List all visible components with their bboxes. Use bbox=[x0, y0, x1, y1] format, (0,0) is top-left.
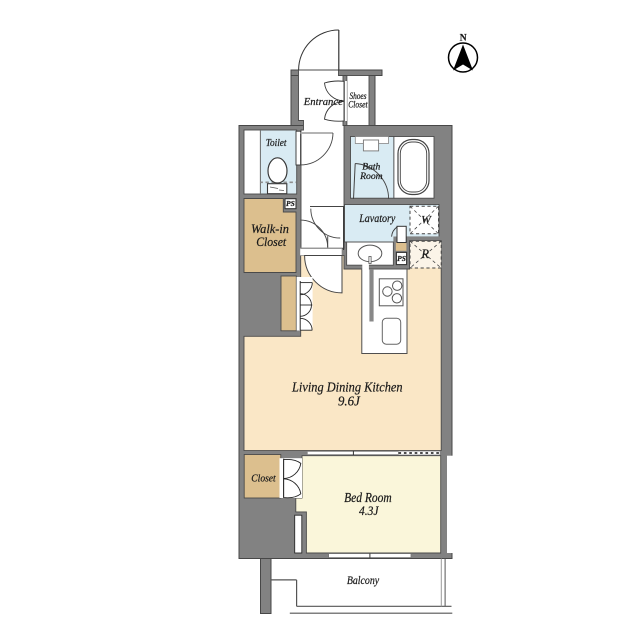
svg-text:Living Dining Kitchen: Living Dining Kitchen bbox=[291, 380, 402, 395]
svg-text:Closet: Closet bbox=[256, 234, 286, 249]
svg-text:Balcony: Balcony bbox=[347, 573, 380, 587]
svg-text:9.6J: 9.6J bbox=[338, 395, 361, 410]
svg-text:Lavatory: Lavatory bbox=[358, 211, 396, 225]
svg-text:Closet: Closet bbox=[348, 100, 368, 110]
svg-text:Toilet: Toilet bbox=[266, 137, 288, 149]
svg-text:W: W bbox=[421, 215, 432, 227]
svg-text:PS: PS bbox=[397, 254, 406, 263]
svg-text:Entrance: Entrance bbox=[303, 97, 343, 108]
svg-text:Room: Room bbox=[359, 171, 383, 181]
svg-text:4.3J: 4.3J bbox=[359, 504, 380, 518]
svg-text:PS: PS bbox=[286, 199, 295, 208]
svg-text:N: N bbox=[460, 33, 467, 43]
svg-text:R: R bbox=[420, 247, 429, 261]
svg-text:Closet: Closet bbox=[251, 473, 276, 484]
